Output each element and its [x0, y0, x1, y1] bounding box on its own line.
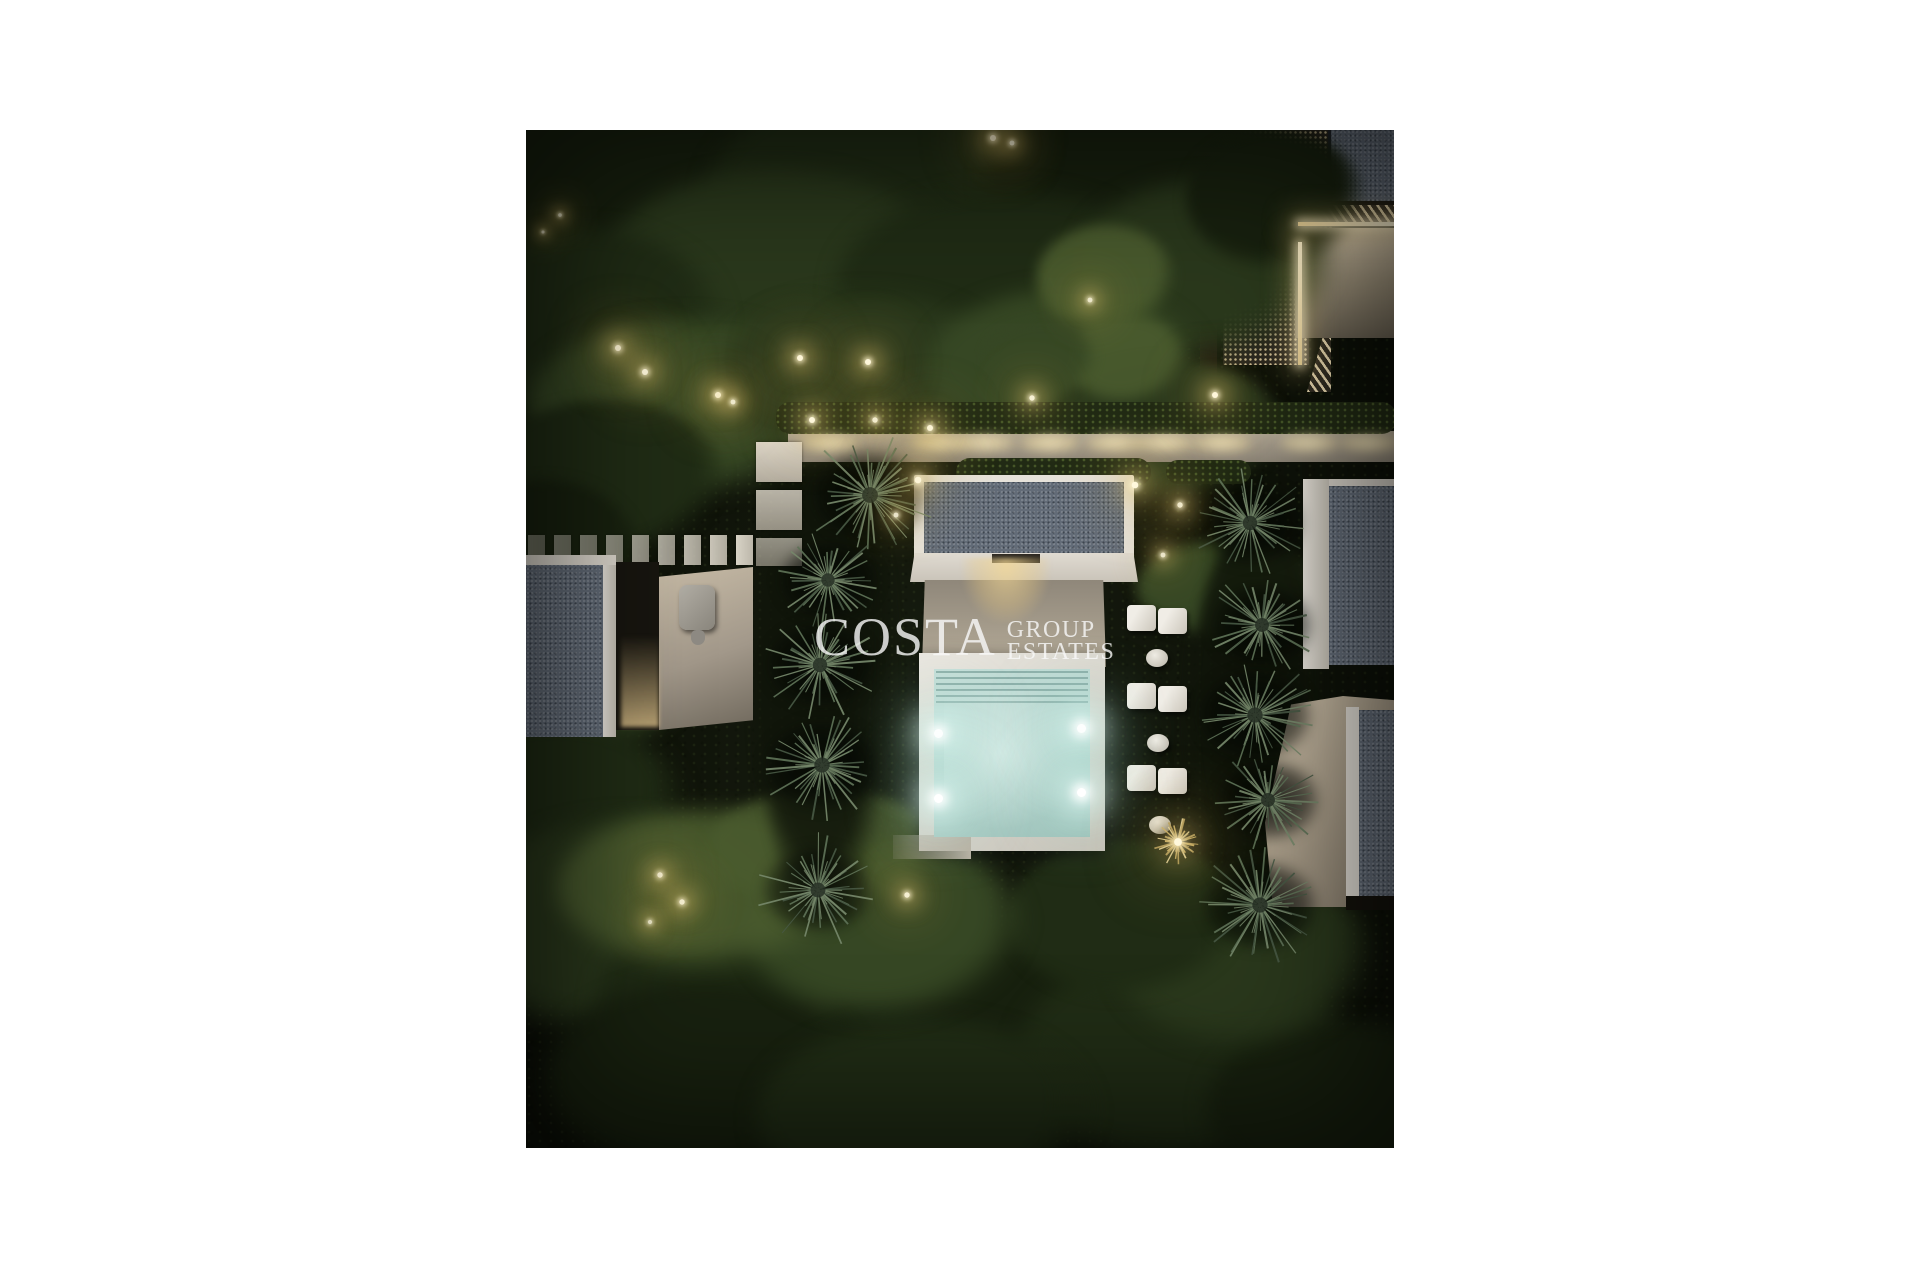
garden-light [679, 899, 684, 904]
garden-light [558, 213, 562, 217]
garden-light [927, 425, 933, 431]
garden-light [872, 417, 877, 422]
garden-light [1088, 298, 1093, 303]
walkway-light-pool [1018, 433, 1082, 453]
garden-light [1177, 502, 1182, 507]
side-stool [1146, 649, 1168, 667]
led-strip-vertical [1298, 242, 1302, 365]
villa-bottom-right-shadow-band [1346, 896, 1394, 910]
aerial-night-render: COSTA GROUP ESTATES [526, 130, 1394, 1148]
garden-light [1212, 392, 1218, 398]
walkway-light-pool [1133, 433, 1197, 453]
villa-bottom-right-roof-frame [1346, 707, 1359, 898]
pool-water-sheen [944, 690, 1084, 830]
garden-light [990, 135, 996, 141]
left-villa-roof-frame-top [526, 555, 616, 565]
outdoor-shower-base [691, 630, 705, 645]
pool-underwater-light [1077, 724, 1086, 733]
side-stool [1147, 734, 1169, 752]
deck-slat [632, 535, 649, 565]
garden-light [894, 513, 899, 518]
garden-light [865, 359, 871, 365]
left-villa-interior-glow [621, 635, 659, 727]
garden-light [542, 231, 545, 234]
walkway-light-pool [1278, 433, 1342, 453]
watermark-brand: COSTA [814, 616, 997, 658]
lounger-cushion [1127, 765, 1156, 791]
deck-slat [710, 535, 727, 565]
garden-light [648, 920, 652, 924]
garden-light [1010, 141, 1015, 146]
garden-light [915, 477, 922, 484]
walkway-light-pool [1190, 433, 1254, 453]
garden-light [1132, 482, 1139, 489]
garden-light [1161, 553, 1166, 558]
watermark-line-estates: ESTATES [1007, 642, 1116, 664]
pool-underwater-light [934, 729, 943, 738]
pavilion-roof-gravel [924, 482, 1124, 553]
outdoor-shower-unit [679, 585, 715, 630]
garden-light [642, 369, 648, 375]
left-villa-roof-gravel [526, 563, 603, 737]
garden-light [731, 400, 736, 405]
watermark-suffix: GROUP ESTATES [1007, 620, 1116, 662]
lounger-cushion [1127, 683, 1156, 709]
villa-bottom-right-roof-gravel [1359, 710, 1394, 896]
garden-light [904, 892, 909, 897]
garden-light [715, 392, 721, 398]
deck-slat [658, 535, 675, 565]
left-villa-roof-frame [603, 557, 616, 737]
garden-light [797, 355, 803, 361]
walkway-light-pool [1338, 433, 1394, 453]
pool-deck-extension [893, 835, 971, 859]
tree-canopy [986, 320, 1096, 400]
pool-underwater-light [1077, 788, 1086, 797]
watermark: COSTA GROUP ESTATES [814, 616, 1115, 662]
led-strip-horizontal [1298, 222, 1394, 226]
pool-underwater-light [934, 794, 943, 803]
walkway-light-pool [953, 433, 1017, 453]
palm-tree [748, 820, 888, 960]
garden-light [657, 872, 662, 877]
garden-light [809, 417, 815, 423]
deck-slat [684, 535, 701, 565]
deck-slat [736, 535, 753, 565]
lounger-cushion [1158, 608, 1187, 634]
mid-right-roof-gravel [1329, 486, 1394, 665]
page-canvas: { "watermark": { "brand": "COSTA", "line… [0, 0, 1920, 1280]
lounger-cushion [1127, 605, 1156, 631]
palm-tree [750, 693, 894, 837]
garden-light [1174, 838, 1182, 846]
tree-canopy [1186, 130, 1366, 270]
garden-light [1029, 395, 1034, 400]
garden-light [615, 345, 621, 351]
